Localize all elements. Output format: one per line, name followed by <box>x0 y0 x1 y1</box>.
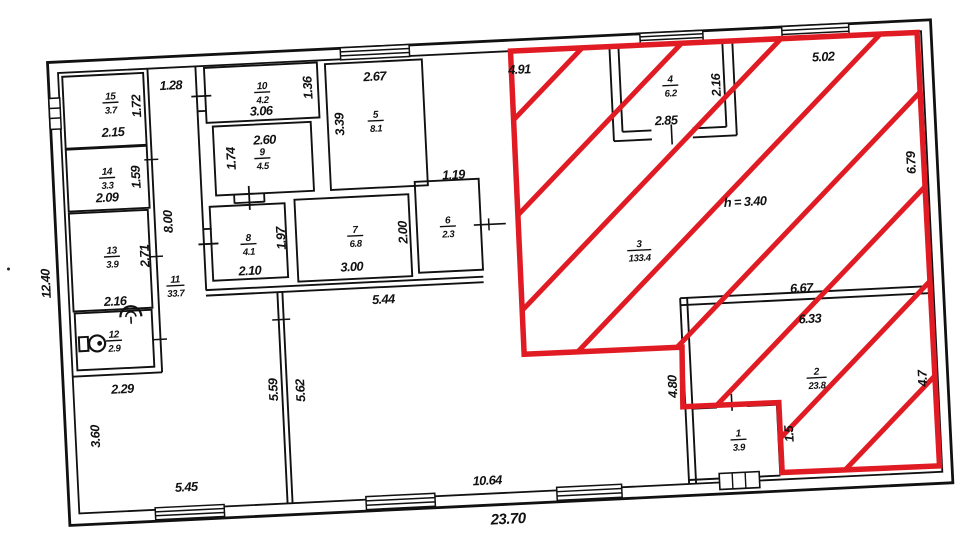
svg-text:4.5: 4.5 <box>255 161 270 173</box>
svg-text:5.02: 5.02 <box>812 48 836 64</box>
svg-text:2.00: 2.00 <box>395 220 411 245</box>
svg-text:1.59: 1.59 <box>128 164 144 189</box>
svg-text:5.44: 5.44 <box>372 291 396 307</box>
svg-text:1.5: 1.5 <box>781 424 797 442</box>
svg-text:15: 15 <box>105 91 117 103</box>
svg-text:23.70: 23.70 <box>489 510 527 529</box>
svg-text:1.36: 1.36 <box>299 75 315 100</box>
svg-text:12.40: 12.40 <box>37 269 53 299</box>
svg-text:6.67: 6.67 <box>790 280 815 296</box>
svg-text:h = 3.40: h = 3.40 <box>723 193 767 210</box>
svg-text:11: 11 <box>170 274 181 285</box>
svg-text:3.9: 3.9 <box>733 442 747 454</box>
svg-text:33.7: 33.7 <box>167 288 186 300</box>
svg-text:2.60: 2.60 <box>252 132 277 148</box>
svg-text:5.62: 5.62 <box>292 379 308 403</box>
svg-text:23.8: 23.8 <box>807 380 827 392</box>
svg-text:5.59: 5.59 <box>265 377 281 402</box>
svg-text:13: 13 <box>106 245 118 257</box>
svg-text:1.19: 1.19 <box>442 166 467 182</box>
svg-text:14: 14 <box>101 166 113 178</box>
svg-text:8.1: 8.1 <box>370 123 383 135</box>
svg-text:4.91: 4.91 <box>507 61 532 77</box>
svg-text:2.09: 2.09 <box>94 189 120 205</box>
svg-text:5.45: 5.45 <box>175 479 200 495</box>
svg-text:2.29: 2.29 <box>110 381 136 397</box>
svg-text:2.3: 2.3 <box>441 229 456 241</box>
svg-text:4.7: 4.7 <box>914 369 930 388</box>
svg-text:10: 10 <box>256 81 268 93</box>
svg-text:12: 12 <box>108 329 120 341</box>
svg-text:6.2: 6.2 <box>664 88 678 100</box>
svg-text:2.10: 2.10 <box>237 262 262 278</box>
svg-text:3.7: 3.7 <box>105 105 119 117</box>
svg-text:2.16: 2.16 <box>708 72 724 98</box>
svg-text:6.8: 6.8 <box>349 238 363 250</box>
svg-text:3.60: 3.60 <box>87 425 103 449</box>
svg-text:3.00: 3.00 <box>340 258 364 274</box>
svg-text:1.97: 1.97 <box>273 225 289 250</box>
svg-text:4.1: 4.1 <box>242 247 256 259</box>
svg-text:3.06: 3.06 <box>249 103 274 119</box>
svg-text:1.28: 1.28 <box>159 77 184 93</box>
svg-text:2.15: 2.15 <box>100 124 126 140</box>
svg-text:3.39: 3.39 <box>331 111 347 136</box>
svg-text:2.71: 2.71 <box>136 244 152 269</box>
svg-text:2.16: 2.16 <box>102 293 128 309</box>
svg-text:1.74: 1.74 <box>223 147 239 171</box>
svg-text:2.67: 2.67 <box>362 68 388 84</box>
svg-text:1.72: 1.72 <box>128 94 144 118</box>
svg-text:6.79: 6.79 <box>903 150 919 175</box>
svg-text:8.00: 8.00 <box>160 210 176 234</box>
svg-text:10.64: 10.64 <box>472 472 502 488</box>
svg-text:6.33: 6.33 <box>798 310 822 326</box>
svg-text:3.9: 3.9 <box>106 259 120 271</box>
svg-text:4.80: 4.80 <box>664 375 680 400</box>
svg-text:2.85: 2.85 <box>653 112 679 128</box>
svg-text:2.9: 2.9 <box>107 343 122 355</box>
svg-text:133.4: 133.4 <box>628 253 652 265</box>
